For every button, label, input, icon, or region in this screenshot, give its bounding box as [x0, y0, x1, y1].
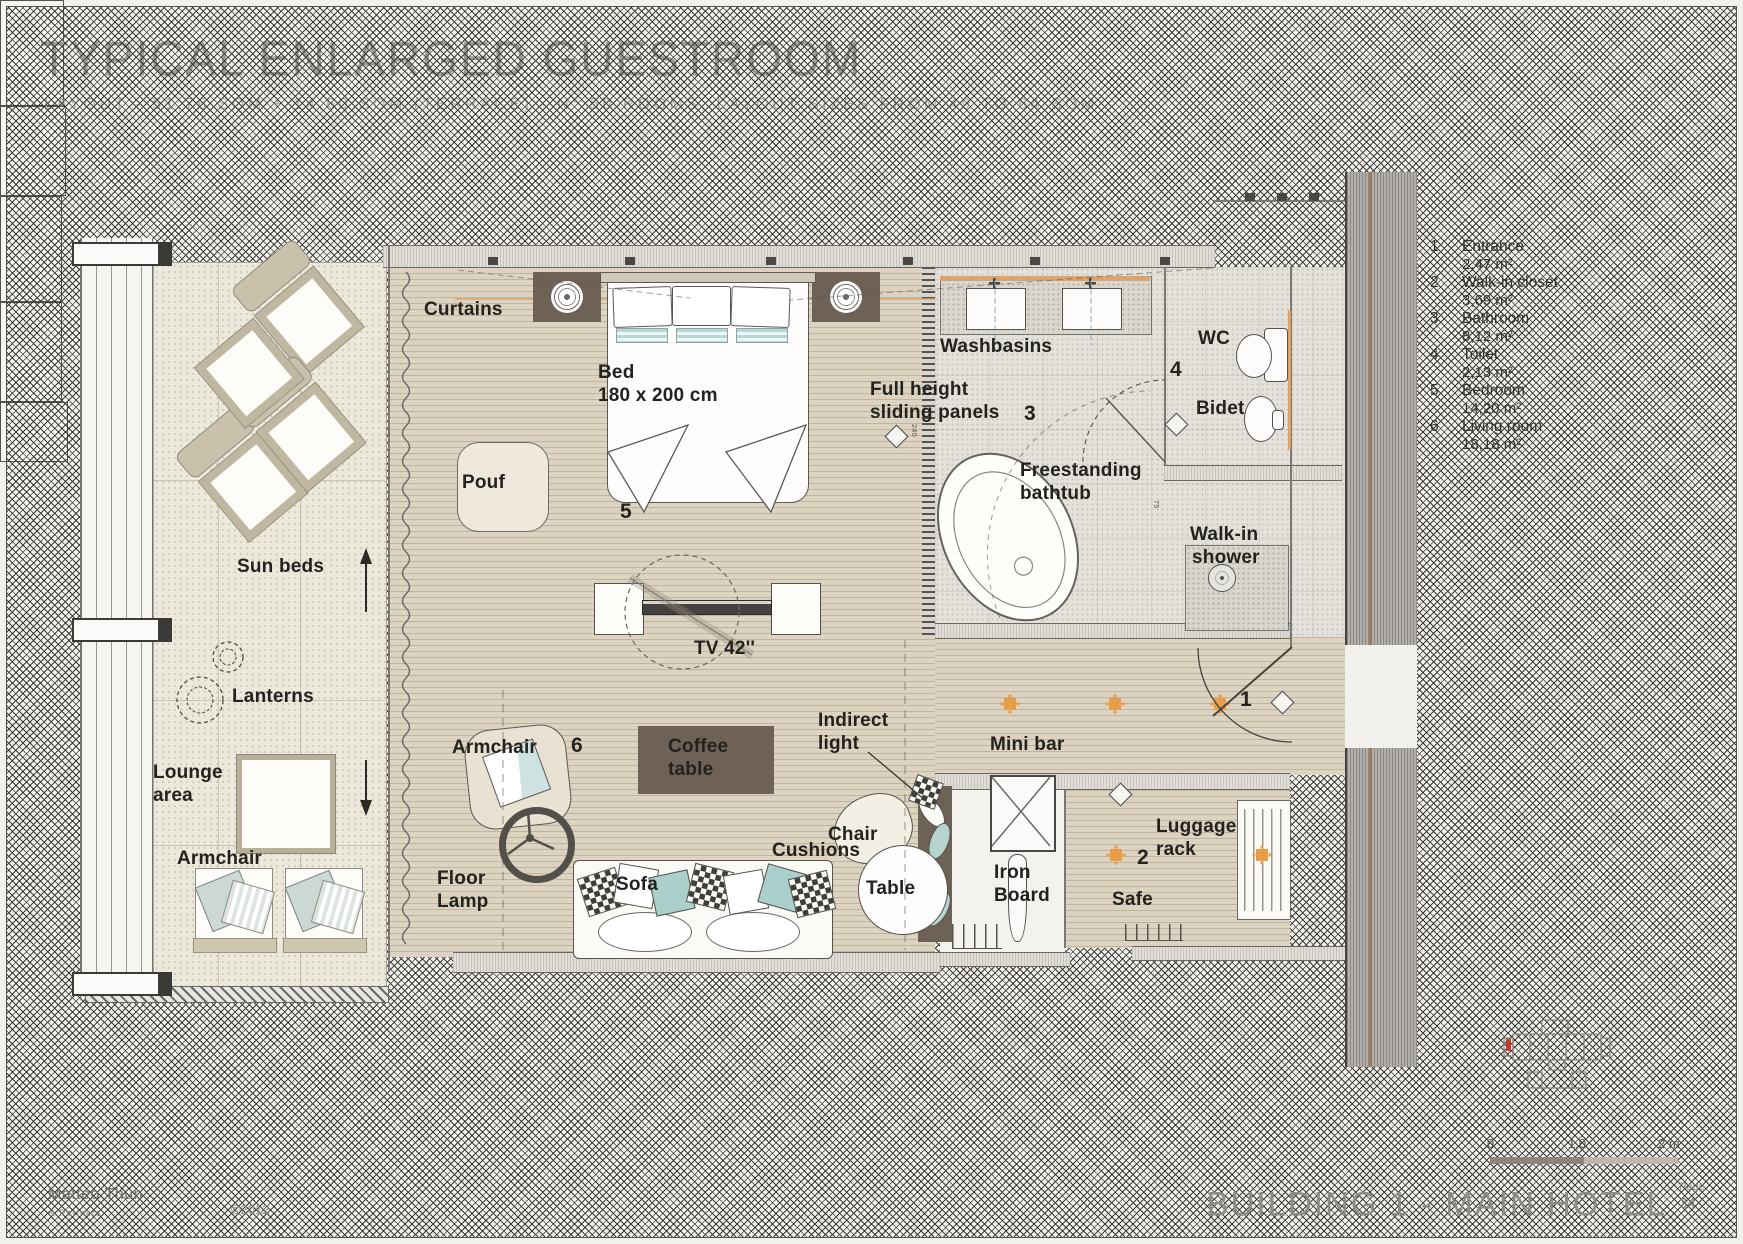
facade-bracket	[72, 972, 172, 996]
sheet-title: BUILDING 1 - MAIN HOTEL	[1207, 1184, 1667, 1224]
ceiling-light-icon	[1256, 849, 1268, 861]
tv-cabinet	[771, 583, 821, 635]
bedside-lamp	[830, 281, 862, 313]
tv-screen	[642, 600, 772, 615]
corridor-bottom-wall	[935, 773, 1290, 790]
lounge-table	[237, 755, 335, 853]
ceiling-light-icon	[1110, 849, 1122, 861]
label-wc: WC	[1198, 328, 1230, 350]
facade-bracket	[72, 618, 172, 642]
legend-area: 2,47 m²	[1462, 256, 1513, 273]
legend-number: 6	[1430, 418, 1439, 436]
label-washbasins: Washbasins	[940, 336, 1052, 358]
label-tv: TV 42''	[694, 638, 755, 660]
faucet-icon	[989, 278, 1000, 289]
firm-name: Matteo Thun	[48, 1186, 143, 1204]
bed-headboard	[600, 272, 816, 283]
facade-bracket	[72, 242, 172, 266]
label-cushions: Cushions	[772, 840, 860, 862]
label-sliding-2: sliding panels	[870, 402, 1000, 424]
label-pouf: Pouf	[462, 472, 505, 494]
window-wall-top	[383, 245, 1215, 268]
window-mullion	[625, 257, 635, 265]
bed-runner	[616, 328, 668, 343]
label-coffee-1: Coffee	[668, 736, 728, 758]
bed-runner	[736, 328, 788, 343]
scale-tick-0: 0	[1487, 1136, 1494, 1151]
label-armchair-terrace: Armchair	[177, 848, 262, 870]
wall-lining	[1369, 172, 1372, 1067]
label-sun-beds: Sun beds	[237, 556, 324, 578]
window-mullion	[488, 257, 498, 265]
toilet-bowl	[1236, 334, 1272, 378]
bedside-lamp	[551, 281, 583, 313]
room-left-wall	[388, 245, 390, 972]
legend-name: Bedroom	[1462, 382, 1525, 400]
legend-number: 3	[1430, 310, 1439, 328]
label-indirect-2: light	[818, 733, 859, 755]
window-mullion	[766, 257, 776, 265]
sliding-panel-wall	[922, 267, 935, 637]
armchair-base	[283, 938, 367, 953]
scale-tick-1: 1,0	[1568, 1136, 1586, 1151]
legend-number: 2	[1430, 274, 1439, 292]
legend-area: 3,69 m²	[1462, 292, 1513, 309]
bed-runner	[676, 328, 728, 343]
service-bottom-wall	[940, 952, 1070, 967]
counter-edge	[940, 276, 1150, 281]
page-label: Page	[1679, 1181, 1705, 1193]
label-iron-1: Iron	[994, 862, 1031, 884]
window-mullion	[903, 257, 913, 265]
number-entrance: 1	[1240, 688, 1252, 712]
terrace-glass-facade	[80, 238, 153, 990]
label-lounge-1: Lounge	[153, 762, 223, 784]
closet-doors	[952, 924, 1002, 949]
entrance-door-opening	[1345, 645, 1417, 748]
shaft	[990, 775, 1056, 852]
structural-column	[0, 402, 68, 462]
legend-name: Entrance	[1462, 238, 1524, 256]
armchair-base	[193, 938, 277, 953]
label-sofa: Sofa	[616, 874, 658, 896]
legend-name: Bathroom	[1462, 310, 1529, 328]
number-living-room: 6	[571, 734, 583, 758]
legend-name: Living room	[1462, 418, 1542, 436]
label-iron-2: Board	[994, 885, 1050, 907]
floor-lamp	[499, 807, 575, 883]
label-sliding-1: Full height	[870, 379, 968, 401]
ceiling-light-icon	[1109, 698, 1121, 710]
number-closet: 2	[1137, 846, 1149, 870]
number-toilet: 4	[1170, 358, 1182, 382]
firm-subname: & Partners	[49, 1208, 102, 1218]
window-mullion	[1245, 193, 1255, 201]
label-floor-lamp-2: Lamp	[437, 891, 488, 913]
legend-name: Walk-in closet	[1462, 274, 1558, 292]
closet-bottom-wall	[1132, 946, 1345, 961]
legend-area: 2,13 m²	[1462, 364, 1513, 381]
scale-segment-dark	[1490, 1157, 1584, 1164]
legend-number: 4	[1430, 346, 1439, 364]
sofa-seat	[598, 912, 692, 952]
wc-shower-wall	[1164, 465, 1342, 481]
washbasin	[966, 288, 1026, 330]
wall-light-icon	[1030, 602, 1042, 614]
label-coffee-2: table	[668, 759, 713, 781]
corridor-wall-band	[1345, 172, 1417, 1067]
bed-pillow	[730, 286, 790, 328]
dimension-text: 240	[910, 424, 917, 437]
dimension-text: 75	[1152, 500, 1159, 509]
window-mullion	[1277, 193, 1287, 201]
terrace-armchair	[285, 868, 363, 942]
legend-number: 5	[1430, 382, 1439, 400]
label-curtains: Curtains	[424, 299, 503, 321]
label-minibar: Mini bar	[990, 734, 1064, 756]
label-floor-lamp-1: Floor	[437, 868, 486, 890]
window-mullion	[1160, 257, 1170, 265]
legend-area: 8,12 m²	[1462, 328, 1513, 345]
label-luggage-2: rack	[1156, 839, 1196, 861]
label-armchair-room: Armchair	[452, 737, 537, 759]
label-table: Table	[866, 878, 915, 900]
label-indirect-1: Indirect	[818, 710, 888, 732]
copyright: ©2012	[231, 1202, 270, 1217]
bidet-tap	[1272, 410, 1284, 430]
legend-number: 1	[1430, 238, 1439, 256]
label-bed-size: 180 x 200 cm	[598, 385, 718, 407]
closet-wall	[1064, 790, 1066, 948]
label-bathtub-2: bathtub	[1020, 483, 1091, 505]
safe-unit	[1125, 924, 1183, 941]
scale-segment-light	[1584, 1157, 1678, 1164]
tv-cabinet	[594, 583, 644, 635]
window-mullion	[1030, 257, 1040, 265]
label-lanterns: Lanterns	[232, 686, 314, 708]
legend-area: 18,18 m²	[1462, 436, 1521, 453]
legend-area: 14,20 m²	[1462, 400, 1521, 417]
scale-tick-2: 2 m	[1658, 1136, 1680, 1151]
bed-pillow	[672, 286, 731, 326]
label-luggage-1: Luggage	[1156, 816, 1237, 838]
label-bidet: Bidet	[1196, 398, 1245, 420]
washbasin	[1062, 288, 1122, 330]
label-lounge-2: area	[153, 785, 193, 807]
label-bed: Bed	[598, 362, 635, 384]
window-mullion	[1309, 193, 1319, 201]
bed-pillow	[612, 286, 672, 328]
label-safe: Safe	[1112, 889, 1153, 911]
ceiling-light-icon	[1214, 698, 1226, 710]
number-bathroom: 3	[1024, 402, 1036, 426]
page-number: 34	[1679, 1195, 1696, 1212]
ceiling-light-icon	[1004, 698, 1016, 710]
wc-partition-wall	[1164, 267, 1166, 465]
wc-light-strip	[1288, 310, 1291, 450]
number-bedroom: 5	[620, 500, 632, 524]
label-shower-2: shower	[1192, 547, 1260, 569]
drawing-sheet: TYPICAL ENLARGED GUESTROOM LAYOUT - 51,7…	[0, 0, 1743, 1244]
label-shower-1: Walk-in	[1190, 524, 1258, 546]
label-bathtub-1: Freestanding	[1020, 460, 1142, 482]
legend-name: Toilet	[1462, 346, 1498, 364]
terrace-armchair	[195, 868, 273, 942]
sofa-seat	[706, 912, 800, 952]
faucet-icon	[1085, 278, 1096, 289]
